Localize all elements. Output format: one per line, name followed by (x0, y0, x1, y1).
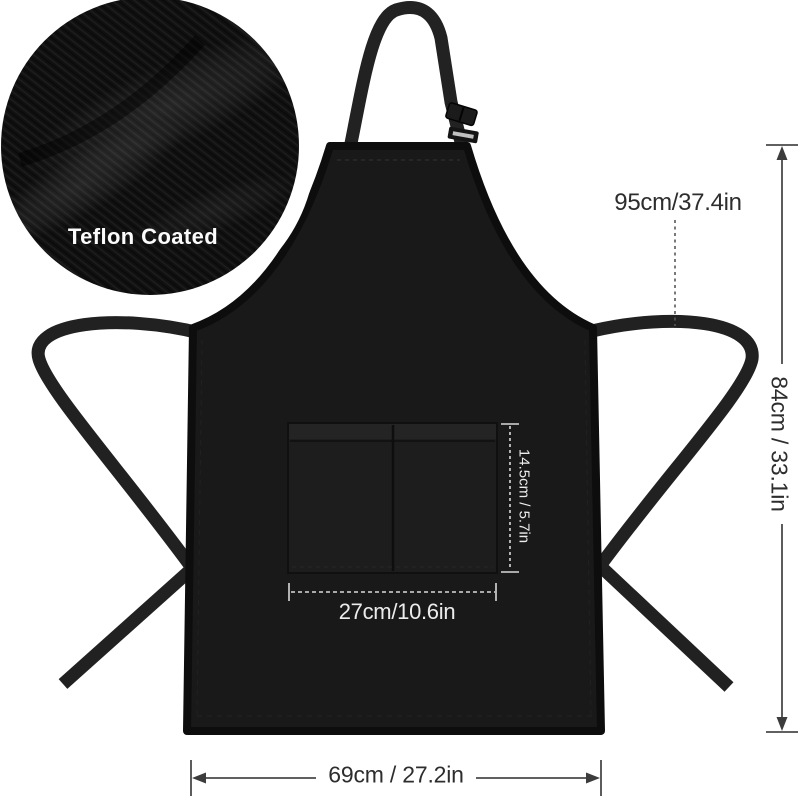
apron-height-label: 84cm / 33.1in (768, 376, 791, 511)
pocket-depth-label: 14.5cm / 5.7in (517, 449, 532, 543)
width-arrow-left (192, 773, 206, 784)
neck-strap-length-label: 95cm/37.4in (614, 191, 741, 215)
waist-tie-left-end (63, 565, 196, 684)
inset-caption: Teflon Coated (68, 226, 218, 248)
neck-strap-band (348, 8, 463, 158)
apron-width-label: 69cm / 27.2in (328, 764, 463, 787)
waist-tie-right-loop (592, 321, 752, 570)
width-arrow-right (586, 773, 600, 784)
height-arrow-down (777, 717, 788, 731)
waist-tie-right-end (597, 563, 729, 687)
strap-metal-loop (447, 127, 479, 144)
height-arrow-up (777, 146, 788, 160)
front-pocket (288, 423, 497, 573)
waist-tie-left-loop (38, 323, 200, 572)
diagram-canvas (0, 0, 800, 800)
pocket-width-label: 27cm/10.6in (339, 601, 456, 623)
apron-dimension-diagram: Teflon Coated 95cm/37.4in 84cm / 33.1in … (0, 0, 800, 800)
neck-strap (348, 8, 479, 158)
